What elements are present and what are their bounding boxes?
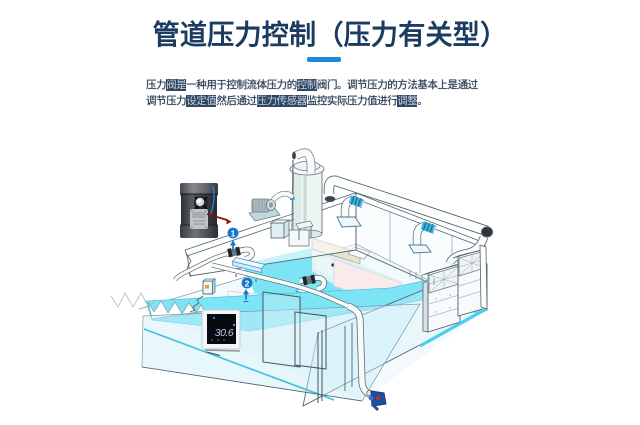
svg-text:1: 1 — [231, 228, 236, 238]
svg-text:30.6: 30.6 — [215, 327, 234, 339]
svg-text:2: 2 — [245, 278, 250, 288]
